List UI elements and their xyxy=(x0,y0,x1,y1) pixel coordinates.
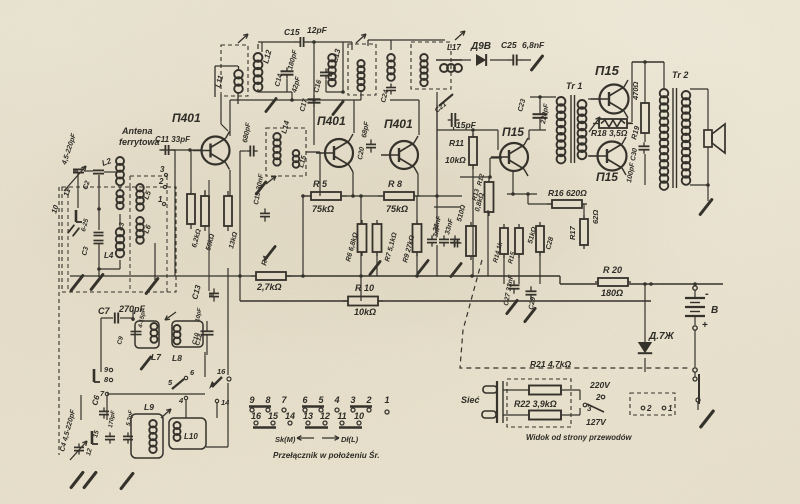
svg-text:R16 620Ω: R16 620Ω xyxy=(548,188,587,198)
svg-text:1: 1 xyxy=(384,395,389,405)
svg-text:R18 3,5Ω: R18 3,5Ω xyxy=(591,128,628,138)
svg-text:62Ω: 62Ω xyxy=(591,210,600,224)
svg-text:3: 3 xyxy=(350,395,355,405)
svg-text:6,8nF: 6,8nF xyxy=(522,40,545,50)
svg-text:C11 33pF: C11 33pF xyxy=(155,135,191,144)
svg-text:П15: П15 xyxy=(595,63,620,78)
svg-text:220V: 220V xyxy=(589,380,611,390)
svg-text:75kΩ: 75kΩ xyxy=(386,204,408,214)
svg-text:2: 2 xyxy=(646,404,652,413)
svg-text:Sk(M): Sk(M) xyxy=(275,435,296,444)
svg-text:+: + xyxy=(702,320,708,331)
svg-text:8: 8 xyxy=(265,395,270,405)
svg-text:10: 10 xyxy=(354,411,364,421)
svg-text:11: 11 xyxy=(337,411,346,421)
svg-text:R 8: R 8 xyxy=(388,179,402,189)
svg-text:3: 3 xyxy=(587,404,592,413)
svg-text:R17: R17 xyxy=(568,225,577,240)
svg-text:L7: L7 xyxy=(151,352,162,362)
svg-text:П401: П401 xyxy=(317,114,346,128)
svg-text:14: 14 xyxy=(285,411,295,421)
svg-text:L17: L17 xyxy=(447,43,461,52)
svg-text:Tr 1: Tr 1 xyxy=(566,81,582,91)
svg-text:2: 2 xyxy=(595,393,601,402)
svg-text:ferrytowa: ferrytowa xyxy=(119,137,160,147)
svg-text:C25: C25 xyxy=(501,40,517,50)
svg-text:12pF: 12pF xyxy=(307,25,328,35)
svg-text:Widok od strony przewodów: Widok od strony przewodów xyxy=(526,433,633,442)
svg-text:13: 13 xyxy=(303,411,313,421)
svg-text:4: 4 xyxy=(333,395,339,405)
svg-text:Д9В: Д9В xyxy=(470,41,491,52)
svg-text:2,7kΩ: 2,7kΩ xyxy=(256,282,282,292)
svg-text:Przełącznik w położeniu Śr.: Przełącznik w położeniu Śr. xyxy=(273,449,379,460)
svg-text:П401: П401 xyxy=(384,117,413,131)
svg-text:14: 14 xyxy=(221,398,230,407)
svg-text:Dł(L): Dł(L) xyxy=(341,435,359,444)
svg-text:B: B xyxy=(711,305,718,316)
svg-text:180Ω: 180Ω xyxy=(601,288,623,298)
svg-text:Sieć: Sieć xyxy=(461,395,480,405)
svg-text:R11: R11 xyxy=(449,138,464,148)
svg-text:П401: П401 xyxy=(172,111,201,125)
svg-text:16: 16 xyxy=(251,411,262,421)
svg-text:-: - xyxy=(705,288,709,300)
svg-text:10kΩ: 10kΩ xyxy=(354,307,376,317)
svg-text:R21 4,7kΩ: R21 4,7kΩ xyxy=(530,359,571,369)
svg-text:L9: L9 xyxy=(144,402,154,412)
svg-text:П15: П15 xyxy=(596,170,618,184)
svg-text:C7: C7 xyxy=(98,306,110,316)
svg-text:3: 3 xyxy=(160,165,165,174)
svg-text:15: 15 xyxy=(268,411,279,421)
svg-text:R22 3,9kΩ: R22 3,9kΩ xyxy=(514,399,557,409)
svg-text:16: 16 xyxy=(217,367,226,376)
svg-text:75kΩ: 75kΩ xyxy=(312,204,334,214)
svg-text:127V: 127V xyxy=(586,417,607,427)
svg-text:9: 9 xyxy=(249,395,254,405)
svg-text:Tr 2: Tr 2 xyxy=(672,70,688,80)
svg-text:L8: L8 xyxy=(172,353,182,363)
svg-text:4: 4 xyxy=(178,396,184,405)
svg-text:Antena: Antena xyxy=(121,126,153,136)
svg-text:2: 2 xyxy=(365,395,371,405)
svg-text:R 20: R 20 xyxy=(603,265,622,275)
svg-text:R 10: R 10 xyxy=(355,283,374,293)
svg-text:L4: L4 xyxy=(104,251,114,260)
svg-text:1: 1 xyxy=(668,404,673,413)
svg-text:2: 2 xyxy=(158,177,164,186)
svg-text:C15: C15 xyxy=(284,27,300,37)
svg-text:10kΩ: 10kΩ xyxy=(445,155,466,165)
svg-text:П15: П15 xyxy=(502,125,524,139)
svg-text:1: 1 xyxy=(158,195,163,204)
svg-text:12: 12 xyxy=(320,411,330,421)
svg-text:L10: L10 xyxy=(184,432,198,441)
svg-text:Д.7Ж: Д.7Ж xyxy=(648,331,675,342)
